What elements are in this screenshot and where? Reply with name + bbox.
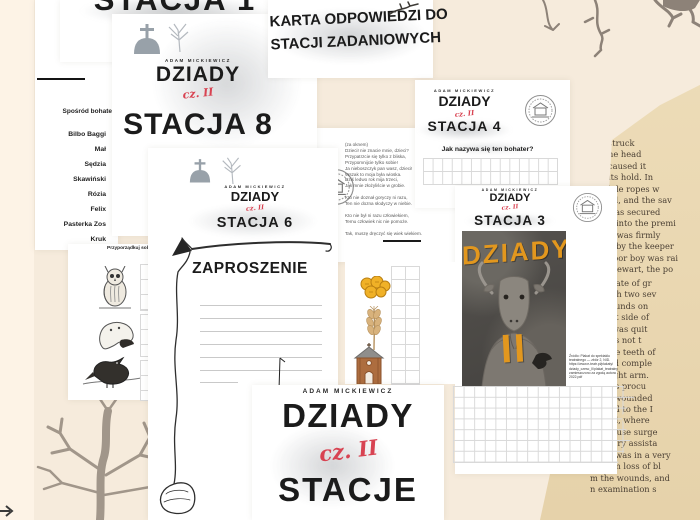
publisher-stamp-icon	[524, 94, 557, 127]
owl-illustration	[95, 266, 135, 310]
matching-items-page	[345, 262, 455, 384]
writing-line[interactable]	[200, 344, 322, 345]
clipping-line: Stewart, the po	[608, 264, 678, 275]
page-top-rule	[37, 78, 85, 80]
bare-branch-icon	[164, 22, 196, 52]
cover-work-title: DZIADY	[252, 397, 444, 435]
answer-letter-grid[interactable]	[423, 158, 558, 185]
character-list-item: Pasterka Zos	[35, 217, 112, 232]
station3-title: STACJA 3	[429, 213, 591, 228]
clipping-line: poor boy was rai	[608, 253, 678, 264]
clipping-drop-word: liv	[650, 86, 670, 104]
clipping-line: it was firmly	[608, 230, 678, 241]
arrow-icon	[0, 503, 16, 519]
clipping-line: d into the premi	[608, 218, 678, 229]
ghost-illustration	[93, 314, 139, 352]
invitation-heading: ZAPROSZENIE	[185, 260, 315, 278]
character-list-item: Felix	[35, 202, 112, 217]
clipping-line: hile ropes w	[608, 184, 678, 195]
station3-answer-grid[interactable]	[453, 386, 634, 463]
station8-title: STACJA 8	[98, 108, 298, 142]
twig-top-decoration	[388, 0, 422, 16]
poem-divider-rule	[383, 240, 421, 242]
writing-line[interactable]	[200, 331, 322, 332]
answer-card-title-line2: STACJI ZADANIOWYCH	[270, 29, 432, 53]
clipping-line: caused it	[608, 161, 678, 172]
writing-line[interactable]	[200, 370, 322, 371]
cover-part-label: cz. II	[317, 434, 379, 466]
cover-title: STACJE	[252, 471, 444, 509]
station6-title: STACJA 6	[160, 215, 350, 231]
poem-line: Tak, muszę dręczyć się wiek wiekiem.	[345, 231, 450, 237]
writing-line[interactable]	[200, 318, 322, 319]
character-list-item: Sędzia	[35, 157, 112, 172]
bare-branch-icon	[218, 156, 248, 184]
cover-page: ADAM MICKIEWICZ DZIADY cz. II STACJE	[252, 385, 444, 520]
clipping-line: n examination s	[590, 484, 671, 495]
clipping-line: its hold. In	[608, 172, 678, 183]
grave-cross-icon	[186, 156, 214, 184]
coins-illustration	[359, 276, 391, 300]
station4-question: Jak nazywa się ten bohater?	[415, 146, 560, 153]
branches-top-right-decoration	[535, 0, 700, 80]
writing-line[interactable]	[200, 357, 322, 358]
cover-author: ADAM MICKIEWICZ	[252, 388, 444, 395]
matching-grid-items[interactable]	[391, 266, 420, 385]
collage-canvas: liv struckne headcaused itits hold. Inhi…	[0, 0, 700, 520]
clipping-line: p by the keeper	[608, 241, 678, 252]
poster-numeral: II	[497, 326, 531, 373]
station3-page: ADAM MICKIEWICZ DZIADY cz. II STACJA 3	[455, 186, 617, 474]
clipping-line: ed, and the sav	[608, 195, 678, 206]
station4-title: STACJA 4	[387, 118, 542, 134]
clipping-line: was secured	[608, 207, 678, 218]
character-list-item: Mał	[35, 142, 112, 157]
writing-line-short[interactable]	[200, 382, 238, 383]
grave-cross-icon	[130, 20, 164, 56]
clipping-line: ne head	[608, 149, 678, 160]
theatre-poster: DZIADY II	[462, 231, 566, 387]
character-list-item: Skawiński	[35, 172, 112, 187]
writing-line[interactable]	[200, 305, 322, 306]
clipping-text-top: struckne headcaused itits hold. Inhile r…	[608, 138, 678, 275]
poster-credit: Źródło: Plakat do spektakluteatralnego —…	[569, 354, 615, 379]
crow-illustration	[81, 350, 143, 390]
clipping-line: struck	[608, 138, 678, 149]
clipping-line: m the wounds, and	[590, 473, 671, 484]
character-list-item: Rózia	[35, 187, 112, 202]
publisher-stamp-icon	[572, 192, 603, 223]
credit-line: 2022.pdf	[569, 375, 615, 379]
chapel-illustration	[351, 342, 387, 384]
credit-line: https://www.e-teatr.pl/plakaty/	[569, 362, 615, 366]
character-list: Bilbo BaggiMałSędziaSkawińskiRóziaFelixP…	[35, 127, 112, 247]
